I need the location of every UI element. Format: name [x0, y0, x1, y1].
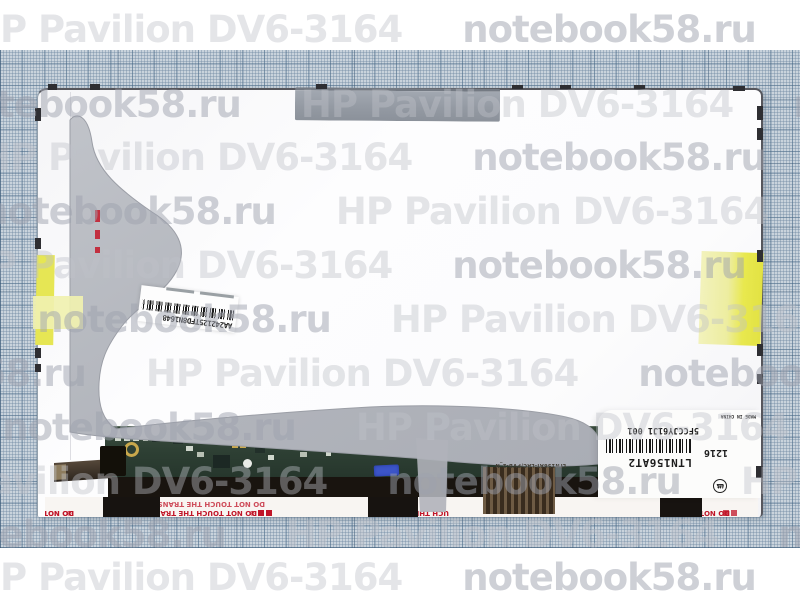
panel-flange-crease: [70, 92, 71, 460]
bonding-gap: [368, 497, 418, 517]
red-square-icon: [266, 510, 272, 516]
mounting-tab: [756, 466, 763, 478]
qc-stamp-blue: [374, 464, 400, 476]
label-serial-text: 5FCCJY61J1 001: [603, 425, 699, 435]
warning-text-main: ⊛DO NOT TOUCH THE TRANSPARENT DO NOT TOU…: [160, 497, 370, 517]
mounting-tab: [757, 106, 763, 120]
mounting-tab: [512, 85, 523, 89]
warning-text-left: ⊛DO NOT TOUCH THE DO NOT TOUCH THE: [45, 497, 103, 517]
fine-print-smudge: [166, 287, 194, 293]
pcb-component: [300, 452, 307, 457]
pcb-component: [282, 440, 290, 446]
pcb-component: [448, 430, 458, 437]
warning-strip: ⊛DO NOT TOUCH THE DO NOT TOUCH THE ⊛DO N…: [45, 497, 758, 517]
yellow-sticker-right: [698, 251, 763, 346]
red-edge-mark: [95, 210, 100, 222]
pcb-component: [186, 446, 193, 451]
mounting-tab: [48, 84, 57, 90]
mounting-tab: [560, 85, 571, 89]
pcb-component: [143, 434, 148, 441]
mounting-tab: [316, 84, 327, 89]
fine-print-smudge: [200, 291, 234, 298]
red-edge-mark: [95, 230, 100, 239]
pcb-component: [555, 430, 569, 439]
bonding-gap: [660, 497, 702, 517]
pcb-component: [240, 443, 246, 448]
pcb-component: [465, 432, 472, 437]
pcb-component: [163, 434, 168, 441]
mounting-tab: [35, 348, 41, 358]
pcb-component: [152, 432, 160, 442]
panel-model-label: MADE IN CHINA 5FCCJY61J1 001 LTN156AT2 1…: [598, 410, 761, 498]
label-model-text: LTN156AT2: [604, 456, 692, 469]
pcb-gold-ring-pad: [124, 442, 139, 457]
product-photo: ⊛DO NOT TOUCH THE DO NOT TOUCH THE ⊛DO N…: [0, 0, 800, 600]
pcb-white-dot: [243, 459, 252, 468]
pcb-component: [124, 433, 130, 441]
pcb-component: [133, 433, 139, 441]
pcb-silkscreen-text: LTN156AT-LAC/PVB-2_N: [466, 462, 566, 468]
pcb-component: [326, 450, 331, 456]
flex-tab-ribbon: [483, 467, 555, 514]
pcb-component: [173, 436, 183, 444]
pcb-component: [240, 436, 246, 441]
ul-us: us: [716, 483, 723, 490]
mounting-tab: [90, 84, 100, 90]
yellow-sticker-left-tab: [33, 296, 83, 329]
made-in-text: MADE IN CHINA: [722, 413, 756, 418]
white-band-bottom: [0, 548, 800, 600]
warning-label: DO NOT TOUCH THE TRANSPARENT: [160, 508, 257, 517]
pcb-component: [213, 455, 230, 468]
pcb-component: [424, 432, 432, 438]
pcb-component: [575, 432, 583, 438]
mounting-tab: [35, 364, 41, 372]
pcb-component: [255, 446, 265, 453]
bonding-gap: [103, 497, 160, 517]
mounting-tab: [634, 85, 645, 89]
pcb-component: [232, 436, 238, 441]
label-week-text: 1216: [692, 447, 728, 458]
red-square-icon: [258, 510, 264, 516]
warning-label: DO NOT TOUCH THE: [45, 508, 74, 517]
white-band-top: [0, 0, 800, 50]
mounting-tab: [757, 374, 763, 384]
mounting-tab: [35, 238, 41, 249]
pcb-component: [115, 433, 121, 441]
mounting-tab: [35, 108, 41, 121]
pcb-component: [436, 432, 444, 438]
warning-text-right: ⊛DO NOT TOUC: [702, 497, 758, 517]
mounting-tab: [733, 86, 745, 91]
pcb-component: [268, 455, 274, 460]
barcode: [606, 439, 692, 453]
warning-label: DO NOT TOUCH THE TRANSPARENT: [160, 499, 265, 508]
red-edge-mark: [95, 247, 100, 253]
pcb-component: [197, 452, 204, 457]
warning-label: UCH THE TRA: [418, 508, 449, 517]
pcb-component: [232, 443, 238, 448]
ul-certification-icon: cULus: [698, 477, 742, 495]
mounting-tab: [757, 128, 763, 140]
mounting-tab: [757, 250, 763, 262]
pcb-component: [318, 436, 324, 444]
red-square-icon: [731, 510, 737, 516]
fpc-connector: [100, 446, 126, 476]
warning-text-mid: UCH THE TRA: [418, 497, 480, 517]
red-square-icon: [723, 510, 729, 516]
lvds-connector: [338, 428, 412, 451]
gray-tape-top: [295, 87, 500, 121]
mounting-tab: [757, 344, 763, 356]
